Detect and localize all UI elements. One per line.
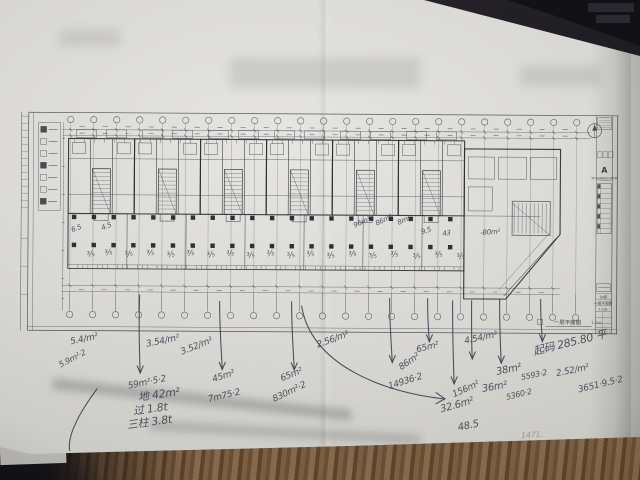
titleblock-block: 1A座 — [599, 294, 608, 299]
photo-of-blueprint: A 浙江省建筑设计研究院 1A座 一层平面图 1:100 一层平面图 1:100… — [0, 0, 640, 480]
drawing-sheet: A 浙江省建筑设计研究院 1A座 一层平面图 1:100 一层平面图 1:100… — [0, 0, 640, 480]
titleblock-scale: 1:100 — [599, 307, 608, 311]
titleblock-logo: A — [601, 166, 608, 175]
printed-labels: A 浙江省建筑设计研究院 1A座 一层平面图 1:100 一层平面图 1:100 — [554, 165, 618, 326]
titleblock-firm: 浙江省建筑设计研究院 — [591, 176, 617, 180]
plan-linework — [20, 112, 618, 334]
ink-arrows — [69, 294, 545, 453]
floor-plan-drawing: A 浙江省建筑设计研究院 1A座 一层平面图 1:100 一层平面图 1:100 — [0, 0, 640, 480]
titleblock-sheet-title: 一层平面图 — [594, 300, 613, 305]
plan-title-label: 一层平面图 — [554, 318, 581, 326]
plan-scale-label: 1:100 — [591, 321, 602, 325]
